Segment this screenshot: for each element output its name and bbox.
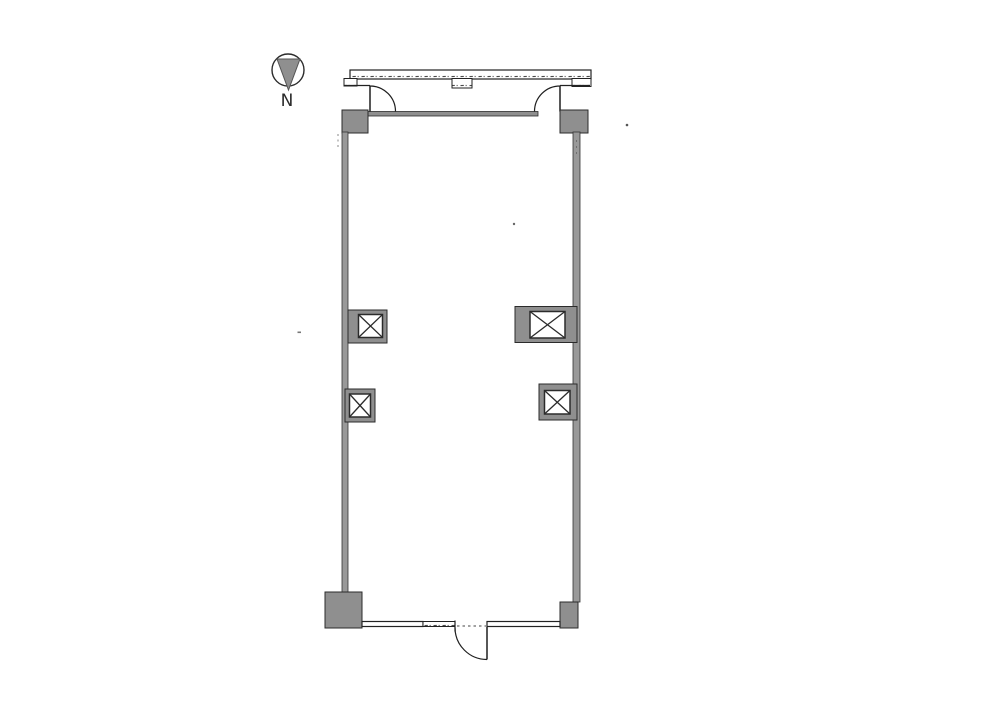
floor-plan-page: N	[0, 0, 1000, 705]
page-background	[0, 0, 1000, 705]
column-upper-right	[515, 307, 577, 343]
right-exterior-wall	[573, 132, 580, 602]
top-wall-center-pier	[452, 79, 472, 89]
top-right-corner-column	[560, 110, 588, 133]
column-lower-right	[539, 384, 577, 420]
bottom-wall-left-segment	[362, 622, 423, 627]
bottom-left-corner-column	[325, 592, 362, 628]
column-upper-left	[348, 310, 387, 343]
artifact-speck	[626, 124, 629, 127]
top-left-corner-column	[342, 110, 368, 133]
bottom-wall-right-segment	[487, 622, 560, 627]
left-exterior-wall	[342, 132, 348, 593]
floor-plan-drawing: N	[0, 0, 1000, 705]
compass-north-label: N	[281, 91, 294, 111]
bottom-wall-hatched-segment	[423, 622, 455, 627]
top-wall-band	[350, 70, 591, 79]
top-wall-left-end-cap	[344, 79, 357, 87]
artifact-speck	[298, 332, 302, 334]
column-lower-left	[345, 389, 375, 422]
bottom-right-corner-column	[560, 602, 578, 628]
artifact-speck	[513, 223, 515, 225]
top-inner-wall	[368, 112, 538, 117]
